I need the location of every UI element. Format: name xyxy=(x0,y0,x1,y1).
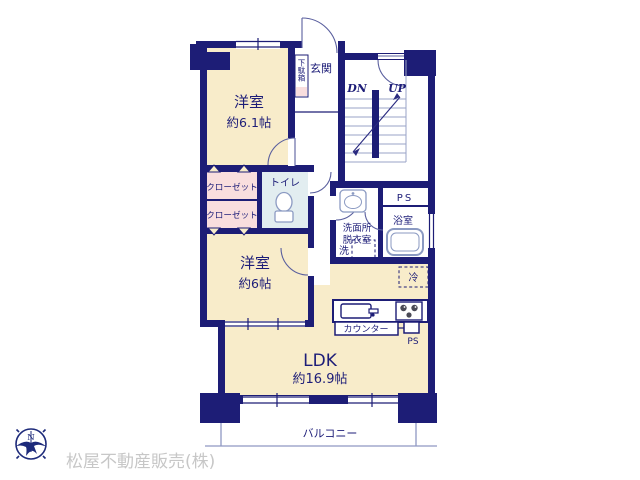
entrance-label: 玄関 xyxy=(310,61,332,75)
stair-divider xyxy=(372,90,379,158)
balcony-label: バルコニー xyxy=(303,427,358,440)
closet-upper-label: クローゼット xyxy=(206,181,258,193)
bedroom2-size-label: 約6帖 xyxy=(239,276,272,291)
wall-stair-bottom xyxy=(330,181,435,188)
wall-bedroom2-right xyxy=(308,234,314,327)
bathtub-icon xyxy=(387,229,423,255)
ps-lower-label: PS xyxy=(407,337,418,347)
wall-partition-stub-left xyxy=(207,320,220,327)
wall-washroom-bottom xyxy=(330,257,435,264)
washbasin-icon xyxy=(340,190,366,212)
front-door xyxy=(302,18,338,53)
ldk-name-label: LDK xyxy=(303,351,338,371)
compass-north-label: N xyxy=(27,433,35,443)
bath-label: 浴室 xyxy=(393,214,413,227)
ps-upper-label: PS xyxy=(397,193,413,204)
compass: N xyxy=(15,429,47,459)
wall-left-lower xyxy=(218,327,225,397)
ldk-hall-junction xyxy=(314,285,330,327)
stairhall-floor xyxy=(345,60,428,181)
fridge-label: 冷 xyxy=(409,271,419,284)
washroom-label-line1: 洗面所 xyxy=(343,222,372,234)
ldk-size-label: 約16.9帖 xyxy=(293,372,348,387)
company-watermark: 松屋不動産販売(株) xyxy=(66,452,215,472)
floor-plan-drawing: 洋室 約6.1帖 下駄箱 玄関 DN UP クローゼット クローゼット トイレ … xyxy=(0,0,640,480)
bedroom1-size-label: 約6.1帖 xyxy=(227,115,272,130)
toilet-icon xyxy=(275,193,293,223)
counter-label: カウンター xyxy=(343,324,388,335)
shoe-cabinet-label: 下駄箱 xyxy=(297,59,306,83)
pillar-top-right xyxy=(404,50,436,76)
wall-ps-bath-line xyxy=(383,205,428,207)
bedroom1-name-label: 洋室 xyxy=(234,93,264,111)
closet-lower-label: クローゼット xyxy=(206,209,258,221)
pillar-bottom-left xyxy=(200,393,240,423)
pillar-bottom-right xyxy=(398,393,437,423)
window-bath-right xyxy=(428,214,435,248)
wall-corridor-washroom xyxy=(330,181,336,264)
corridor-floor xyxy=(314,188,330,288)
wall-washroom-bath xyxy=(378,188,383,257)
bedroom2-name-label: 洋室 xyxy=(240,254,270,272)
wall-closet-divider xyxy=(207,199,257,201)
floor-plan-page: 洋室 約6.1帖 下駄箱 玄関 DN UP クローゼット クローゼット トイレ … xyxy=(0,0,640,480)
stairs-up-label: UP xyxy=(388,82,407,95)
upper-hall-floor xyxy=(314,115,338,188)
wall-partition-stub-right xyxy=(305,320,314,327)
pillar-top-left-b xyxy=(190,52,230,70)
kitchen-counter-unit xyxy=(333,300,428,322)
wall-entrance-stair xyxy=(338,60,345,188)
toilet-label: トイレ xyxy=(270,178,300,189)
window-bedroom1-top xyxy=(236,38,280,50)
washroom-label-line2: 脱衣室 xyxy=(343,234,372,246)
stove-icon xyxy=(396,302,422,320)
washer-label: 洗 xyxy=(339,245,349,257)
stairs-down-label: DN xyxy=(346,82,368,95)
